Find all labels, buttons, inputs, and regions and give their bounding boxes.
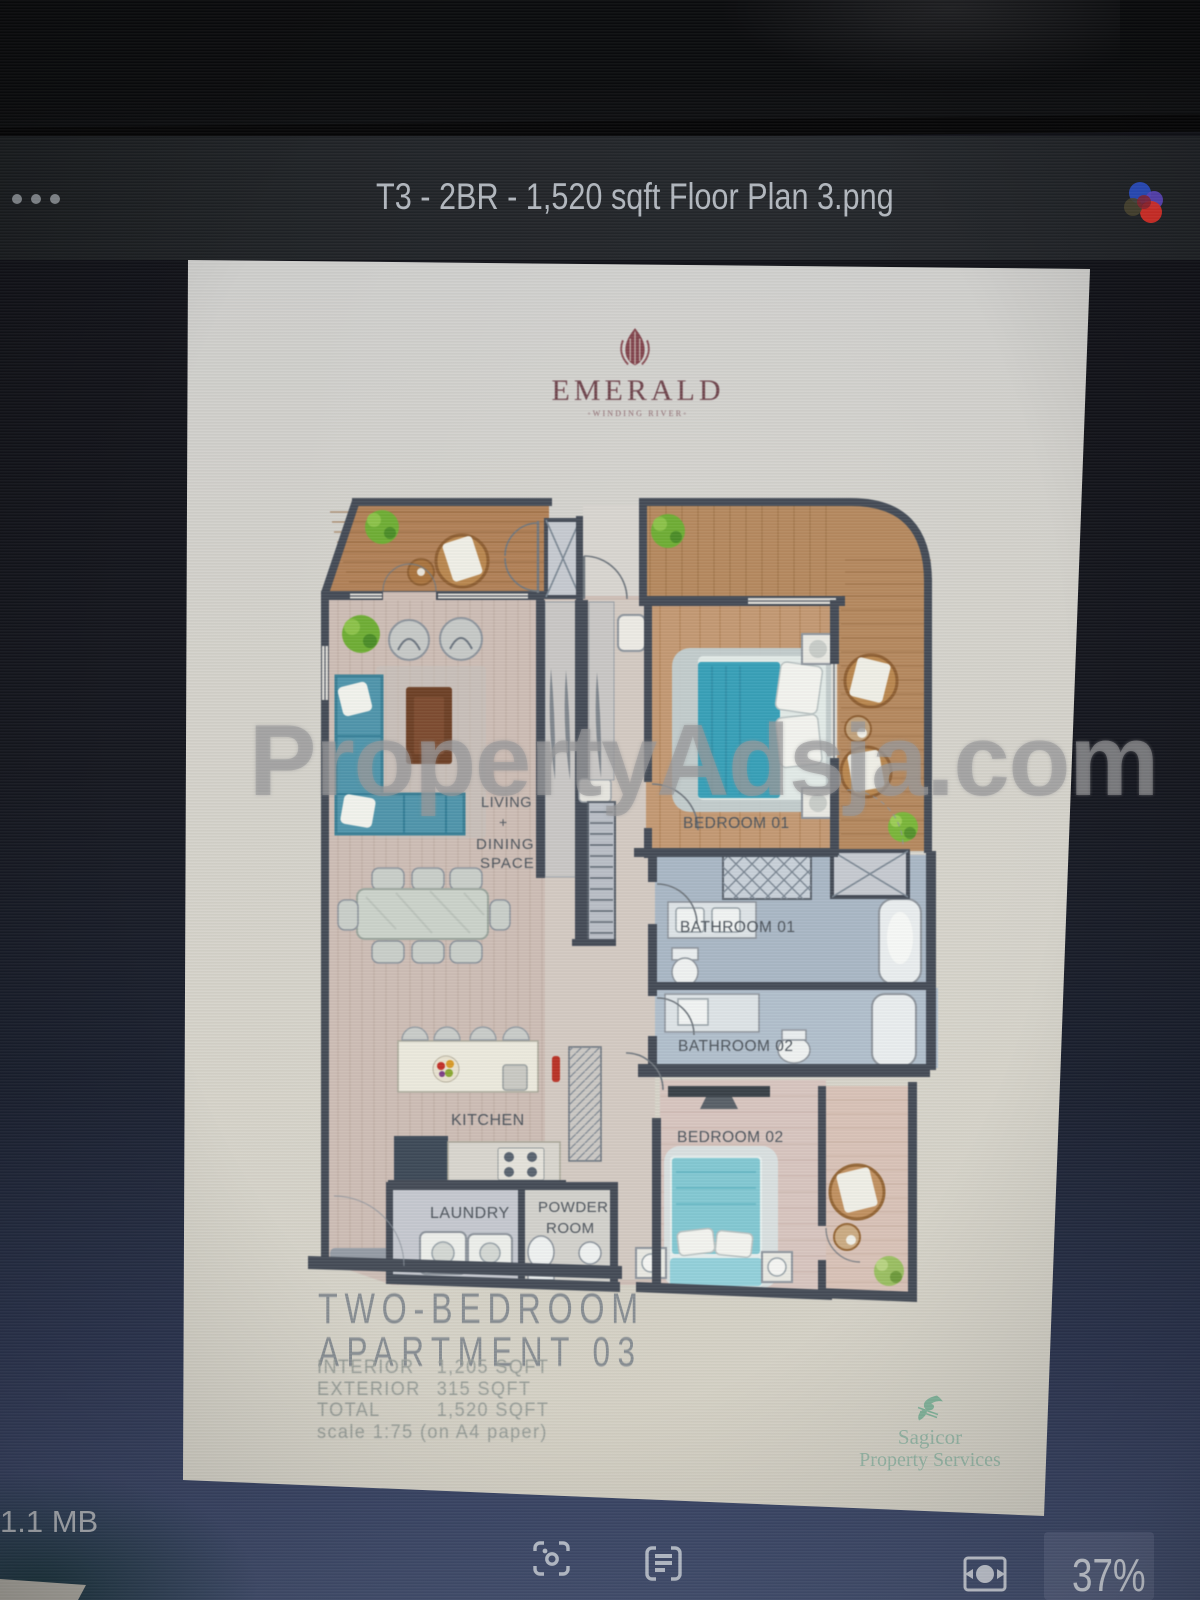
svg-text:SPACE: SPACE [480, 855, 535, 872]
svg-text:POWDER: POWDER [538, 1199, 609, 1216]
svg-text:BATHROOM 01: BATHROOM 01 [680, 919, 795, 936]
svg-text:KITCHEN: KITCHEN [451, 1112, 525, 1129]
svg-text:BEDROOM 02: BEDROOM 02 [677, 1129, 784, 1146]
svg-text:DINING: DINING [476, 836, 535, 853]
svg-text:ROOM: ROOM [546, 1220, 595, 1237]
svg-text:BATHROOM 02: BATHROOM 02 [678, 1038, 793, 1055]
svg-text:LAUNDRY: LAUNDRY [430, 1205, 510, 1222]
